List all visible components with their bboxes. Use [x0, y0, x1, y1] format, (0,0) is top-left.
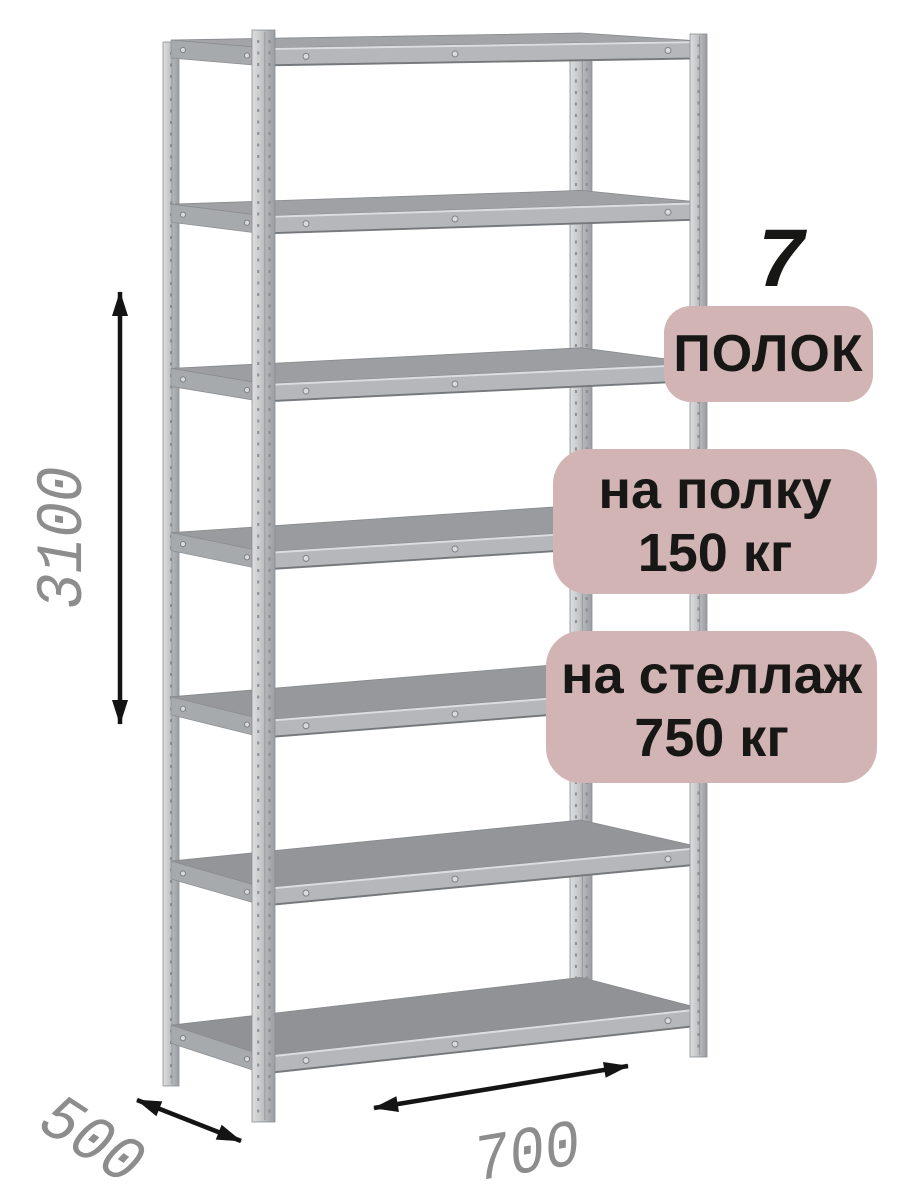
shelf-count-badge-label: ПОЛОК — [673, 325, 863, 383]
shelf-count-number: 7 — [706, 214, 856, 304]
per-rack-load-line1: на стеллаж — [546, 644, 877, 707]
per-shelf-load-badge: на полку 150 кг — [553, 449, 877, 594]
height-dimension-arrow — [98, 254, 142, 762]
per-shelf-load-line1: на полку — [553, 459, 877, 522]
product-image-canvas: 3100 500 700 7 ПОЛОК на полку 150 кг на … — [0, 0, 900, 1200]
shelf-count-badge: ПОЛОК — [664, 306, 873, 402]
height-dimension-label: 3100 — [29, 433, 99, 643]
width-dimension-value: 700 — [468, 1112, 585, 1199]
per-rack-load-line2: 750 кг — [546, 707, 877, 770]
per-shelf-load-line2: 150 кг — [553, 522, 877, 585]
per-rack-load-badge: на стеллаж 750 кг — [546, 631, 877, 783]
height-dimension-value: 3100 — [29, 467, 99, 610]
